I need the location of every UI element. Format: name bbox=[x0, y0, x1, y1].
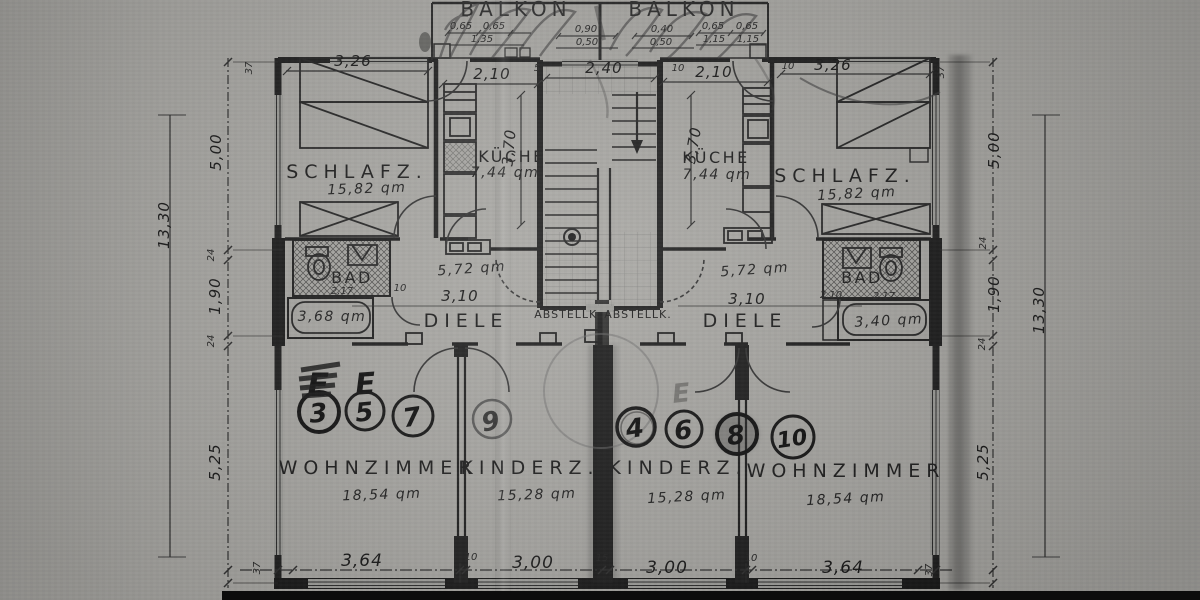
dim-24a-left: 24 bbox=[206, 249, 217, 262]
dim-210-left: 2,10 bbox=[473, 65, 510, 83]
dim-525-right: 5,25 bbox=[974, 443, 992, 480]
dim-balc-r2-3: 1,15 bbox=[703, 34, 725, 45]
label-kinderz-right: KINDERZ. bbox=[608, 457, 747, 479]
label-diele-right: DIELE bbox=[703, 310, 788, 332]
area-kinderz-left: 15,28 qm bbox=[497, 486, 577, 505]
dim-300-right: 3,00 bbox=[646, 558, 688, 578]
area-tub-right: 3,40 qm bbox=[854, 311, 923, 331]
area-kueche-left: 7,44 qm bbox=[471, 165, 540, 181]
label-balkon-right: BALKON bbox=[628, 0, 739, 21]
dim-bad-right-217: 2,17 bbox=[873, 291, 896, 302]
unit-number-9: 9 bbox=[479, 406, 502, 439]
dim-diele-left-310: 3,10 bbox=[441, 287, 478, 305]
dim-outer-right: 13,30 bbox=[1030, 286, 1048, 334]
area-diele-right: 5,72 qm bbox=[720, 260, 790, 281]
dim-bad-left-door: 10 bbox=[394, 283, 407, 294]
unit-number-7: 7 bbox=[401, 402, 424, 434]
e-mark-2: E bbox=[354, 366, 377, 402]
wardrobe-right bbox=[822, 204, 930, 234]
stairwell bbox=[543, 66, 657, 306]
dim-balc-r1-3: 0,40 bbox=[651, 24, 673, 35]
area-schlafz-left: 15,82 qm bbox=[327, 180, 407, 199]
dim-190-left: 1,90 bbox=[206, 277, 224, 314]
area-schlafz-right: 15,82 qm bbox=[817, 184, 897, 204]
label-schlafz-left: SCHLAFZ. bbox=[286, 161, 428, 183]
unit-number-6: 6 bbox=[673, 415, 694, 446]
dim-364-right: 3,64 bbox=[822, 558, 864, 578]
scanned-floorplan-page: 13,30 13,30 37 5,00 24 1,90 24 5,25 37 3… bbox=[0, 0, 1200, 600]
dim-500-right: 5,00 bbox=[985, 131, 1003, 168]
unit-circle-7: 7 bbox=[393, 396, 433, 436]
area-wohnzimmer-right: 18,54 qm bbox=[806, 489, 886, 509]
unit-circle-4: 4 bbox=[617, 408, 655, 446]
unit-number-10: 10 bbox=[775, 425, 809, 454]
dim-24a-right: 24 bbox=[978, 237, 989, 250]
dim-24b-left: 24 bbox=[206, 335, 217, 348]
dim-balc-r1-4: 0,65 bbox=[702, 21, 724, 32]
wardrobe-left bbox=[300, 202, 398, 236]
dim-wall-37-tl: 37 bbox=[244, 61, 255, 74]
dim-outer-left: 13,30 bbox=[155, 201, 173, 249]
dim-525-left: 5,25 bbox=[206, 443, 224, 480]
dim-balc-r2-0: 1,35 bbox=[471, 34, 493, 45]
area-kinderz-right: 15,28 qm bbox=[647, 487, 727, 507]
dim-15-center: 15 bbox=[596, 553, 609, 564]
unit-circle-8: 8 bbox=[715, 414, 759, 454]
label-bad-left: BAD bbox=[331, 268, 373, 287]
label-abstellk-right: ABSTELLK. bbox=[604, 308, 672, 321]
dim-wall-37-bl: 37 bbox=[252, 561, 263, 574]
dim-10-right: 10 bbox=[745, 553, 758, 564]
area-wohnzimmer-left: 18,54 qm bbox=[342, 486, 422, 505]
label-kueche-right: KÜCHE bbox=[682, 148, 750, 167]
dim-bad-right-210: 2,10 bbox=[820, 290, 842, 301]
label-balkon-left: BALKON bbox=[460, 0, 571, 21]
unit-circle-6: 6 bbox=[666, 411, 702, 447]
stair-direction-arrow bbox=[631, 92, 643, 154]
dim-wt10-stair: 10 bbox=[672, 63, 685, 74]
label-kueche-left: KÜCHE bbox=[478, 147, 546, 166]
dim-wt5: 5 bbox=[534, 63, 540, 74]
dim-364-left: 3,64 bbox=[341, 551, 383, 571]
label-kinderz-left: KINDERZ. bbox=[460, 457, 599, 479]
dim-wt10-bed: 10 bbox=[782, 61, 795, 72]
dim-500-left: 5,00 bbox=[207, 133, 225, 170]
label-wohnzimmer-left: WOHNZIMMER bbox=[279, 457, 478, 479]
unit-circle-9: 9 bbox=[473, 400, 511, 438]
unit-circle-10: 10 bbox=[772, 416, 814, 458]
dim-wall-37-br: 37 bbox=[924, 563, 935, 576]
dim-10-left: 10 bbox=[465, 552, 478, 563]
floorplan-drawing: 13,30 13,30 37 5,00 24 1,90 24 5,25 37 3… bbox=[0, 0, 1200, 600]
dim-190-right: 1,90 bbox=[985, 275, 1003, 312]
dim-wall-37-tr: 37 bbox=[936, 65, 947, 78]
dim-balc-r2-2: 0,50 bbox=[650, 37, 672, 48]
area-tub-left: 3,68 qm bbox=[298, 309, 367, 325]
dim-balc-r1-2: 0,90 bbox=[575, 24, 597, 35]
dim-240-stair: 2,40 bbox=[585, 59, 622, 77]
dim-balc-r2-4: 1,15 bbox=[737, 34, 759, 45]
dim-balc-r2-1: 0,50 bbox=[576, 37, 598, 48]
label-abstellk-left: ABSTELLK. bbox=[534, 308, 602, 321]
dim-balc-r1-5: 0,65 bbox=[736, 21, 758, 32]
dim-diele-right-310: 3,10 bbox=[728, 290, 765, 308]
dim-balc-r1-0: 0,65 bbox=[450, 21, 472, 32]
e-mark-faint: E bbox=[671, 378, 692, 410]
dim-balc-r1-1: 0,65 bbox=[483, 21, 505, 32]
dim-300-left: 3,00 bbox=[512, 553, 554, 573]
dim-326-right: 3,26 bbox=[814, 56, 851, 74]
label-diele-left: DIELE bbox=[424, 310, 509, 332]
label-bad-right: BAD bbox=[841, 268, 883, 287]
walls bbox=[272, 58, 942, 589]
label-wohnzimmer-right: WOHNZIMMER bbox=[747, 460, 946, 482]
area-diele-left: 5,72 qm bbox=[437, 259, 507, 280]
dim-bad-left-217: 2,17 bbox=[331, 286, 354, 297]
dim-326-left: 3,26 bbox=[334, 52, 371, 70]
area-kueche-right: 7,44 qm bbox=[683, 167, 752, 183]
dim-210-right: 2,10 bbox=[695, 63, 732, 81]
dim-24b-right: 24 bbox=[977, 338, 988, 351]
